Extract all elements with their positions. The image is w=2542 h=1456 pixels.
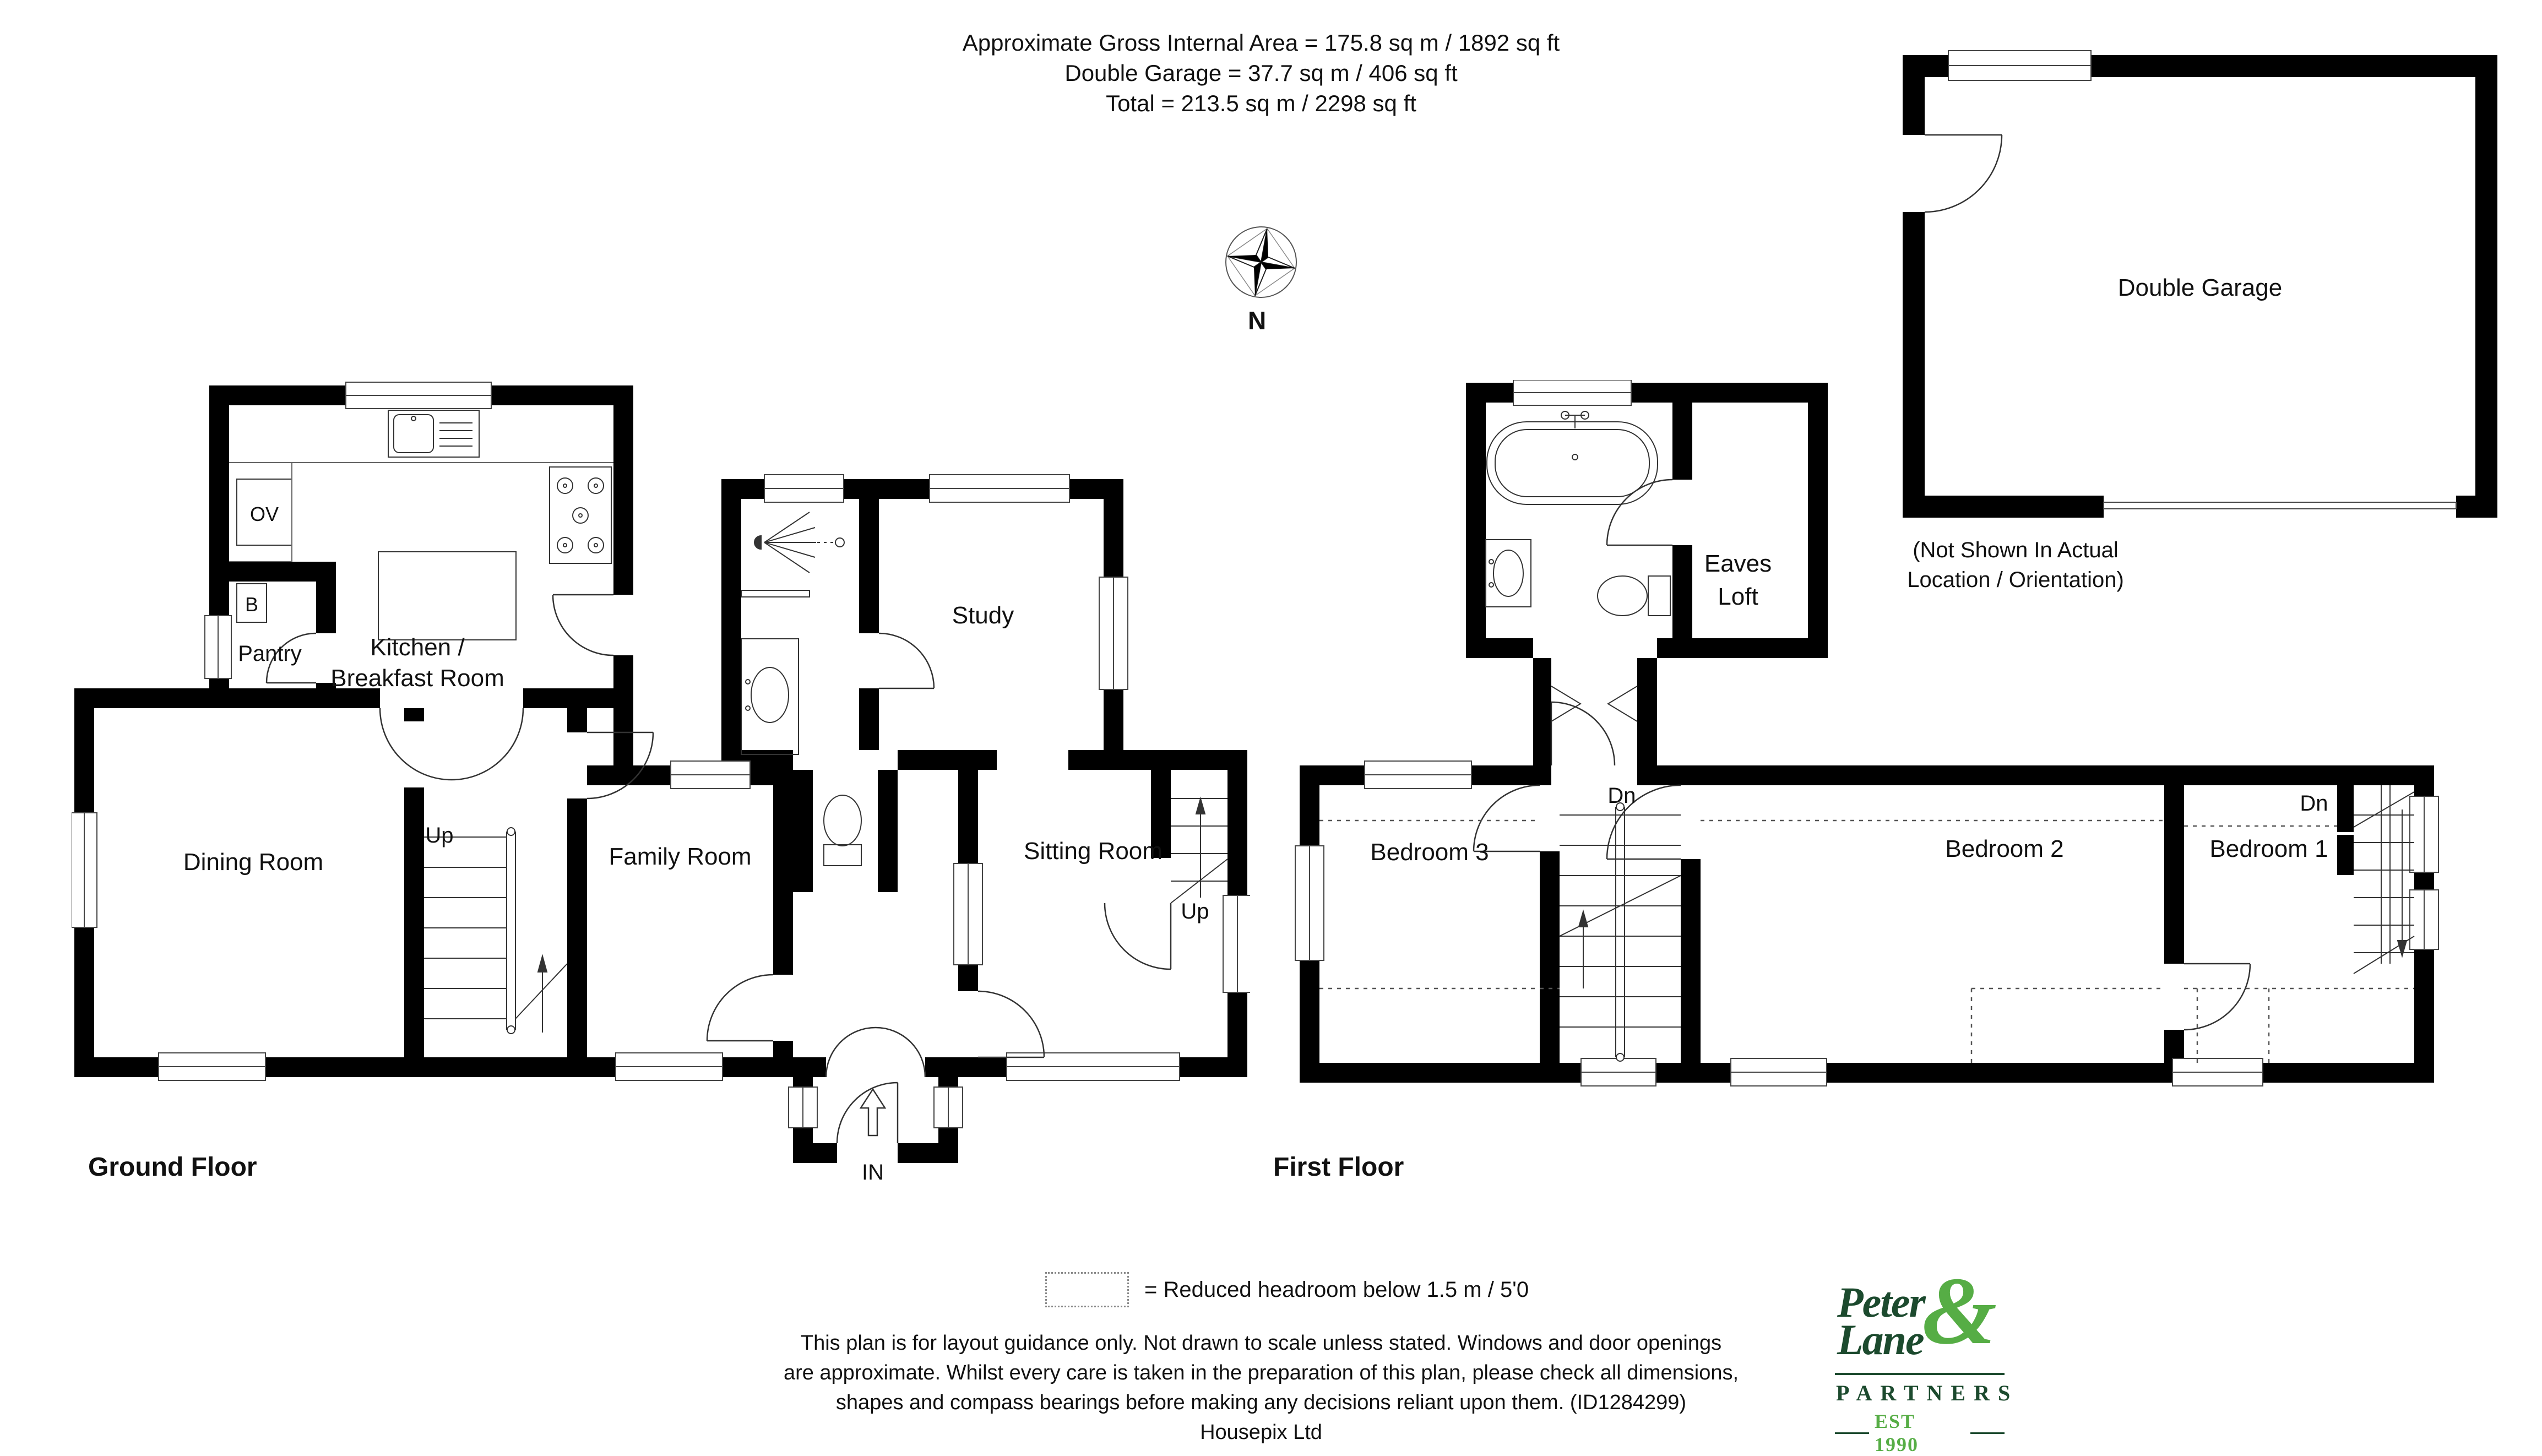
entrance-arrow-icon: [861, 1089, 885, 1136]
garage-note-line2: Location / Orientation): [1883, 565, 2148, 595]
logo-partners: PARTNERS: [1836, 1380, 2018, 1406]
arch-opening: [380, 708, 523, 780]
room-label-bedroom1: Bedroom 1: [2209, 835, 2328, 862]
legend-text: = Reduced headroom below 1.5 m / 5'0: [1144, 1278, 1529, 1302]
garage-window: [1948, 51, 2091, 80]
area-summary: Approximate Gross Internal Area = 175.8 …: [710, 28, 1812, 118]
logo-est-text: EST 1990: [1875, 1410, 1965, 1456]
disclaimer-company: Housepix Ltd: [650, 1417, 1872, 1447]
ground-floor-plan: Kitchen / Breakfast Room Pantry OV B Din…: [72, 380, 1250, 1184]
label-stairs-up-hall: Up: [425, 823, 453, 847]
garage-plan: Double Garage: [1894, 47, 2506, 526]
arch-opening-entrance: [826, 1028, 925, 1077]
washbasin-icon: [741, 639, 799, 754]
garage-note-line1: (Not Shown In Actual: [1883, 535, 2148, 565]
legend: = Reduced headroom below 1.5 m / 5'0: [1045, 1268, 1529, 1312]
ground-floor-title: Ground Floor: [88, 1152, 257, 1182]
agency-logo: & Peter Lane PARTNERS EST 1990: [1835, 1276, 2022, 1431]
room-label-kitchen-2: Breakfast Room: [330, 665, 504, 692]
compass-north-label: N: [1248, 306, 1266, 335]
ground-floor-stairs-sitting: [1171, 798, 1227, 903]
shelf: [741, 590, 810, 597]
bath-icon: [1487, 411, 1658, 504]
disclaimer: This plan is for layout guidance only. N…: [650, 1328, 1872, 1447]
garage-door-opening: [2104, 502, 2456, 509]
logo-est-row: EST 1990: [1835, 1410, 2005, 1456]
garage-note: (Not Shown In Actual Location / Orientat…: [1883, 535, 2148, 595]
reduced-headroom-swatch: [1045, 1272, 1129, 1307]
room-label-pantry: Pantry: [238, 642, 302, 666]
logo-word-lane: Lane: [1837, 1315, 1924, 1365]
label-stairs-up-sitting: Up: [1181, 899, 1209, 923]
sink-icon: [388, 410, 479, 457]
room-label-sitting: Sitting Room: [1024, 838, 1163, 865]
room-label-dining: Dining Room: [183, 849, 323, 876]
room-label-kitchen-1: Kitchen /: [370, 634, 465, 661]
kitchen-counter-line: [229, 463, 613, 562]
logo-divider: [1835, 1373, 2005, 1375]
toilet-icon: [824, 795, 861, 866]
logo-ampersand: &: [1922, 1256, 1997, 1366]
kitchen-island: [378, 552, 516, 640]
room-label-garage: Double Garage: [2118, 274, 2282, 301]
kitchen-fixtures: [229, 410, 613, 640]
room-label-bedroom2: Bedroom 2: [1945, 835, 2063, 862]
label-stairs-down-landing: Dn: [1607, 784, 1636, 808]
room-label-eaves-1: Eaves: [1704, 550, 1772, 577]
bathroom-fixtures: [1486, 411, 1670, 616]
label-boiler: B: [245, 593, 258, 616]
hob-icon: [550, 467, 611, 563]
compass: N: [1212, 214, 1311, 335]
ground-floor-walls: [74, 385, 1247, 1163]
toilet-icon: [1598, 576, 1670, 616]
compass-star-icon: [1227, 229, 1295, 296]
area-summary-line3: Total = 213.5 sq m / 2298 sq ft: [710, 88, 1812, 118]
logo-est-line-left: [1835, 1432, 1869, 1434]
room-label-bedroom3: Bedroom 3: [1370, 839, 1489, 866]
area-summary-line1: Approximate Gross Internal Area = 175.8 …: [710, 28, 1812, 58]
label-stairs-down-bed1: Dn: [2300, 791, 2328, 816]
area-summary-line2: Double Garage = 37.7 sq m / 406 sq ft: [710, 58, 1812, 88]
shower-icon: [754, 512, 844, 573]
logo-est-line-right: [1970, 1432, 2005, 1434]
ground-floor-stairs-hall: [424, 828, 567, 1034]
first-floor-stairs-landing: [1560, 803, 1681, 1061]
first-floor-stairs-bed1: [2354, 785, 2414, 974]
label-oven: OV: [250, 503, 279, 525]
garage-side-door: [1925, 135, 2002, 212]
disclaimer-line3: shapes and compass bearings before makin…: [650, 1388, 1872, 1417]
room-label-eaves-2: Loft: [1718, 583, 1758, 610]
ground-floor-room-labels: Kitchen / Breakfast Room Pantry OV B Din…: [183, 503, 1209, 1184]
room-label-family: Family Room: [609, 843, 751, 870]
label-entrance-in: IN: [862, 1160, 884, 1184]
washbasin-icon: [1486, 540, 1531, 607]
disclaimer-line1: This plan is for layout guidance only. N…: [650, 1328, 1872, 1358]
first-floor-title: First Floor: [1273, 1152, 1404, 1182]
disclaimer-line2: are approximate. Whilst every care is ta…: [650, 1358, 1872, 1388]
first-floor-room-labels: Bedroom 3 Dn Bedroom 2 Bedroom 1 Dn Eave…: [1370, 550, 2328, 866]
room-label-study: Study: [952, 602, 1014, 629]
